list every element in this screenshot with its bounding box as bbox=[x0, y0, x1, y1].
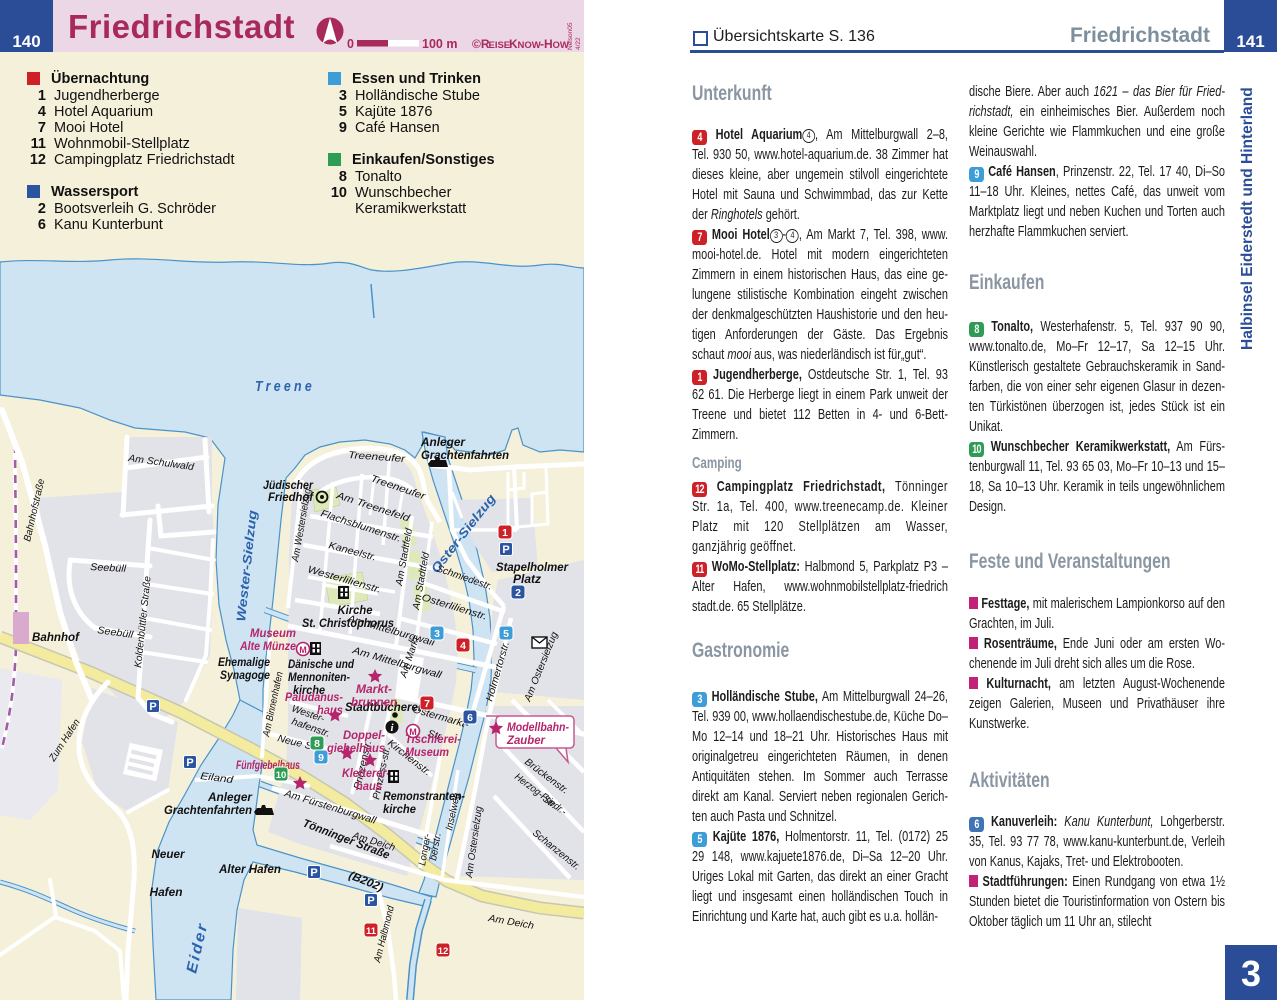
svg-text:Grachtenfahrten: Grachtenfahrten bbox=[164, 805, 252, 817]
svg-text:Museum: Museum bbox=[405, 747, 449, 759]
svg-text:Jüdischer: Jüdischer bbox=[263, 480, 313, 492]
svg-text:Anleger: Anleger bbox=[207, 792, 253, 804]
svg-text:1: 1 bbox=[502, 527, 508, 539]
svg-text:11: 11 bbox=[366, 926, 377, 937]
svg-text:2: 2 bbox=[515, 587, 521, 599]
svg-text:-H: -H bbox=[540, 37, 553, 51]
svg-text:9: 9 bbox=[318, 752, 324, 764]
svg-text:Alter Hafen: Alter Hafen bbox=[218, 864, 281, 876]
svg-text:Friedhof: Friedhof bbox=[268, 492, 314, 504]
svg-text:Dänische und: Dänische und bbox=[288, 659, 355, 671]
svg-text:Stapelholmer: Stapelholmer bbox=[496, 562, 569, 574]
svg-text:4/22: 4/22 bbox=[575, 37, 582, 50]
svg-text:haus: haus bbox=[356, 781, 382, 793]
svg-text:Platz: Platz bbox=[513, 574, 541, 586]
svg-text:3: 3 bbox=[434, 628, 440, 640]
svg-text:10: 10 bbox=[276, 770, 287, 781]
svg-text:Neuer: Neuer bbox=[152, 849, 186, 861]
svg-text:Remonstranten-: Remonstranten- bbox=[383, 791, 465, 803]
svg-text:Ehemalige: Ehemalige bbox=[218, 657, 271, 669]
svg-text:Museum: Museum bbox=[250, 628, 296, 640]
svg-text:4: 4 bbox=[460, 640, 466, 652]
svg-text:Treene: Treene bbox=[255, 378, 315, 395]
svg-text:Kletterer-: Kletterer- bbox=[342, 768, 390, 780]
svg-text:NOW: NOW bbox=[518, 40, 541, 51]
svg-text:Bahnhof: Bahnhof bbox=[32, 632, 80, 644]
svg-text:5: 5 bbox=[503, 628, 509, 640]
svg-text:0: 0 bbox=[347, 37, 354, 51]
svg-text:Zauber: Zauber bbox=[506, 735, 546, 747]
svg-text:Synagoge: Synagoge bbox=[220, 670, 271, 682]
svg-text:©R: ©R bbox=[472, 37, 490, 51]
svg-text:kirche: kirche bbox=[383, 804, 417, 816]
svg-text:Alte Münze: Alte Münze bbox=[239, 641, 296, 653]
svg-text:Hafen: Hafen bbox=[150, 887, 183, 899]
svg-text:Seebüll: Seebüll bbox=[90, 562, 127, 575]
svg-text:EISE: EISE bbox=[489, 40, 511, 51]
svg-text:M: M bbox=[299, 645, 307, 655]
svg-text:100 m: 100 m bbox=[422, 37, 457, 51]
svg-text:6: 6 bbox=[467, 712, 473, 724]
svg-text:brunnen: brunnen bbox=[351, 697, 397, 709]
svg-text:giebelhaus: giebelhaus bbox=[326, 743, 385, 755]
svg-text:Markt-: Markt- bbox=[356, 684, 392, 696]
svg-text:7: 7 bbox=[424, 698, 430, 710]
svg-text:Paludanus-: Paludanus- bbox=[285, 692, 343, 704]
svg-text:8: 8 bbox=[314, 738, 320, 750]
svg-text:Kirche: Kirche bbox=[338, 605, 374, 617]
svg-text:St. Christophorus: St. Christophorus bbox=[302, 618, 394, 630]
svg-text:12: 12 bbox=[438, 946, 449, 957]
svg-text:Anleger: Anleger bbox=[420, 437, 466, 449]
svg-text:Nelson05: Nelson05 bbox=[567, 22, 574, 50]
svg-text:Doppel-: Doppel- bbox=[343, 730, 385, 742]
svg-text:Fünfgiebelhaus: Fünfgiebelhaus bbox=[236, 760, 300, 772]
svg-text:Modellbahn-: Modellbahn- bbox=[507, 722, 569, 734]
svg-text:Mennoniten-: Mennoniten- bbox=[288, 672, 350, 684]
svg-text:M: M bbox=[409, 727, 417, 737]
